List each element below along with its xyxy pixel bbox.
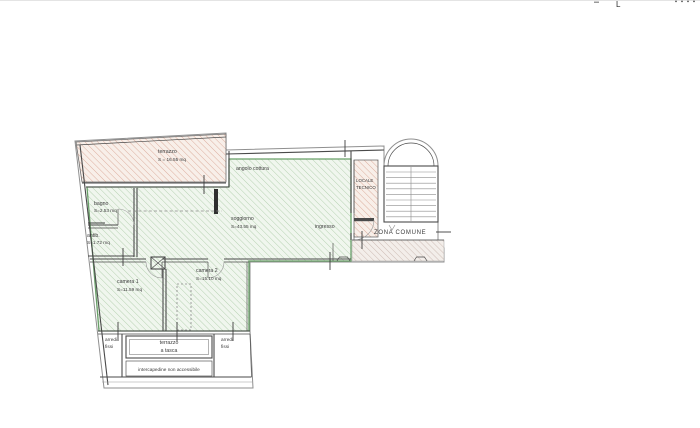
label-soggiorno: soggiorno: [231, 216, 254, 222]
label-terrazzo-tasca-2: a tasca: [161, 348, 178, 354]
label-soggiorno-area: S=43.55 mq: [231, 224, 257, 229]
label-arredi-dx-2: fissi: [221, 344, 229, 349]
label-arredi-sx-1: arredi: [105, 337, 117, 342]
label-angolo-cottura: angolo cottura: [236, 166, 269, 172]
label-locale-tecnico-1: LOCALE: [356, 178, 373, 183]
label-bagno-area: S=2.53 mq: [94, 208, 117, 213]
locale-tecnico-area: [354, 160, 378, 237]
label-arredi-dx-1: arredi: [221, 337, 233, 342]
label-terrazzo-area: S = 16.55 mq: [158, 157, 186, 162]
label-terrazzo-tasca-1: terrazzo: [160, 340, 179, 346]
label-terrazzo: terrazzo: [158, 149, 177, 155]
apartment-interior-area: [87, 159, 351, 331]
label-antibagno-area: S=1.72 mq: [87, 240, 110, 245]
label-camera1-area: S=11.59 mq: [117, 287, 142, 292]
cropped-text-artifact: L: [616, 0, 621, 9]
label-zona-comune: ZONA COMUNE: [374, 230, 426, 236]
label-locale-tecnico-2: TECNICO: [356, 185, 376, 190]
label-camera2-area: S=15.10 mq: [196, 276, 222, 281]
label-arredi-sx-2: fissi: [105, 344, 113, 349]
label-antibagno: antib.: [87, 233, 100, 239]
label-intercapedine: intercapedine non accessibile: [138, 367, 200, 372]
cropped-mark: [594, 2, 599, 4]
staircase: [384, 143, 438, 230]
zona-comune-area: [352, 240, 444, 261]
label-camera2: camera 2: [196, 268, 218, 274]
label-bagno: bagno: [94, 201, 109, 207]
label-ingresso: ingresso: [315, 224, 335, 230]
floorplan-canvas: L: [0, 0, 700, 428]
floorplan-image: L: [0, 0, 700, 428]
label-camera1: camera 1: [117, 279, 139, 285]
